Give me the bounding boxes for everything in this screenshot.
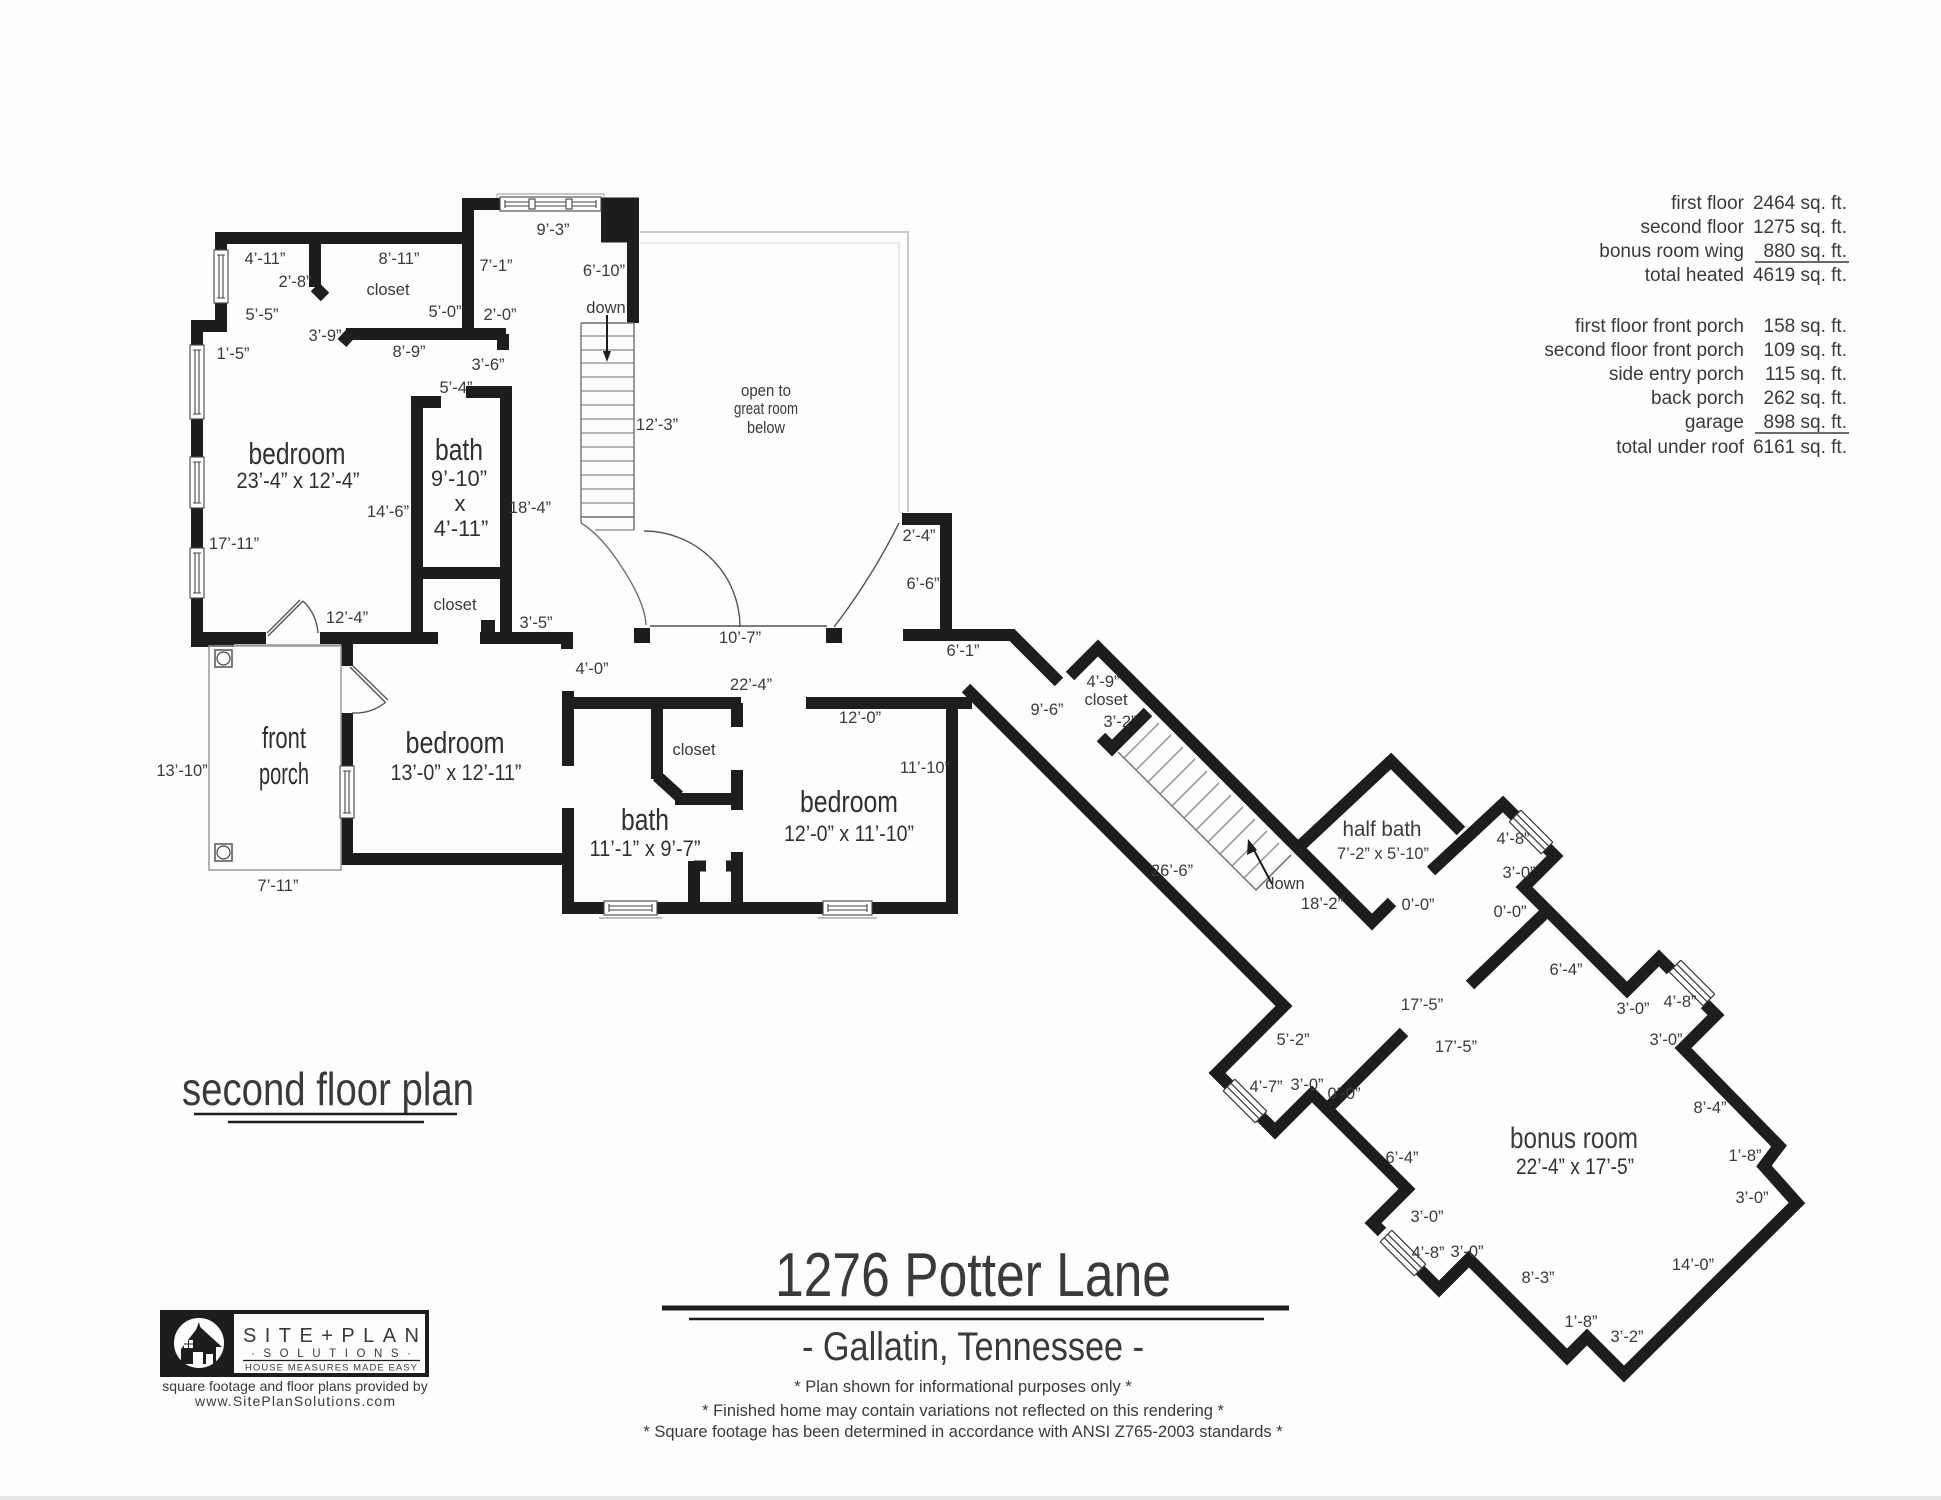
svg-text:4’-0”: 4’-0”	[575, 660, 608, 678]
svg-text:4’-11”: 4’-11”	[245, 250, 286, 268]
svg-text:bonus room: bonus room	[1510, 1122, 1638, 1155]
svg-text:17’-5”: 17’-5”	[1435, 1038, 1477, 1056]
svg-text:6’-6”: 6’-6”	[906, 575, 939, 593]
svg-text:14’-0”: 14’-0”	[1672, 1256, 1714, 1274]
svg-text:13’-0” x 12’-11”: 13’-0” x 12’-11”	[391, 760, 522, 785]
svg-text:880 sq. ft.: 880 sq. ft.	[1764, 241, 1847, 262]
svg-text:* Finished home may contain va: * Finished home may contain variations n…	[702, 1402, 1224, 1420]
svg-text:13’-10”: 13’-10”	[156, 762, 207, 780]
svg-text:6’-4”: 6’-4”	[1385, 1149, 1418, 1167]
svg-text:closet: closet	[1084, 691, 1128, 709]
svg-text:bedroom: bedroom	[406, 725, 505, 760]
svg-text:3’-0”: 3’-0”	[1649, 1031, 1682, 1049]
svg-text:4’-8”: 4’-8”	[1663, 993, 1696, 1011]
svg-text:262 sq. ft.: 262 sq. ft.	[1764, 388, 1847, 409]
svg-text:8’-4”: 8’-4”	[1693, 1099, 1726, 1117]
svg-text:5’-2”: 5’-2”	[1276, 1031, 1309, 1049]
svg-text:half bath: half bath	[1343, 818, 1422, 841]
svg-text:* Square footage has been dete: * Square footage has been determined in …	[643, 1423, 1283, 1441]
svg-text:14’-6”: 14’-6”	[367, 503, 409, 521]
svg-text:x: x	[455, 491, 466, 516]
svg-text:open to: open to	[741, 382, 791, 400]
svg-text:17’-5”: 17’-5”	[1401, 996, 1443, 1014]
svg-text:9’-6”: 9’-6”	[1030, 701, 1063, 719]
svg-text:22’-4”: 22’-4”	[730, 676, 772, 694]
svg-text:0’-0”: 0’-0”	[1327, 1085, 1360, 1103]
svg-text:total under roof: total under roof	[1616, 437, 1745, 458]
svg-text:3’-2”: 3’-2”	[1103, 713, 1136, 731]
svg-text:bedroom: bedroom	[800, 784, 898, 819]
svg-text:- Gallatin, Tennessee -: - Gallatin, Tennessee -	[802, 1325, 1144, 1369]
svg-text:closet: closet	[433, 596, 477, 614]
svg-text:4’-11”: 4’-11”	[434, 516, 489, 541]
svg-text:first floor front porch: first floor front porch	[1575, 316, 1744, 337]
svg-text:2464 sq. ft.: 2464 sq. ft.	[1753, 193, 1847, 214]
svg-text:3’-0”: 3’-0”	[1450, 1243, 1483, 1261]
svg-text:great room: great room	[734, 400, 798, 418]
svg-text:1276 Potter Lane: 1276 Potter Lane	[775, 1241, 1171, 1310]
svg-text:5’-4”: 5’-4”	[439, 379, 472, 397]
svg-text:bonus room wing: bonus room wing	[1599, 241, 1744, 262]
svg-text:12’-0” x 11’-10”: 12’-0” x 11’-10”	[784, 821, 914, 846]
svg-text:below: below	[747, 419, 785, 437]
svg-text:8’-9”: 8’-9”	[392, 343, 425, 361]
svg-text:first floor: first floor	[1671, 193, 1745, 214]
svg-text:3’-2”: 3’-2”	[1610, 1328, 1643, 1346]
svg-text:SITE+PLAN: SITE+PLAN	[243, 1325, 419, 1347]
svg-text:bedroom: bedroom	[249, 436, 346, 471]
svg-text:5’-0”: 5’-0”	[428, 303, 461, 321]
svg-text:5’-5”: 5’-5”	[245, 306, 278, 324]
svg-text:second floor front porch: second floor front porch	[1544, 340, 1744, 361]
svg-text:bath: bath	[621, 802, 669, 837]
svg-text:side entry porch: side entry porch	[1609, 364, 1744, 385]
svg-text:12’-3”: 12’-3”	[636, 416, 678, 434]
svg-text:garage: garage	[1685, 412, 1744, 433]
svg-text:down: down	[586, 299, 625, 317]
svg-text:3’-0”: 3’-0”	[1290, 1076, 1323, 1094]
svg-text:second floor: second floor	[1640, 217, 1744, 238]
svg-text:0’-0”: 0’-0”	[1401, 896, 1434, 914]
svg-text:2’-0”: 2’-0”	[483, 306, 516, 324]
svg-text:18’-2”: 18’-2”	[1301, 895, 1343, 913]
svg-text:* Plan shown for informational: * Plan shown for informational purposes …	[794, 1378, 1132, 1396]
svg-text:12’-0”: 12’-0”	[839, 709, 881, 727]
svg-text:11’-10”: 11’-10”	[900, 759, 950, 777]
svg-text:2’-4”: 2’-4”	[902, 527, 935, 545]
svg-text:1’-8”: 1’-8”	[1728, 1147, 1761, 1165]
svg-text:7’-2” x 5’-10”: 7’-2” x 5’-10”	[1337, 845, 1429, 863]
svg-text:7’-1”: 7’-1”	[479, 257, 512, 275]
svg-text:115 sq. ft.: 115 sq. ft.	[1765, 364, 1847, 385]
svg-text:HOUSE MEASURES MADE EASY: HOUSE MEASURES MADE EASY	[245, 1363, 418, 1374]
svg-text:26’-6”: 26’-6”	[1151, 862, 1193, 880]
svg-text:6161 sq. ft.: 6161 sq. ft.	[1753, 437, 1847, 458]
svg-text:4619 sq. ft.: 4619 sq. ft.	[1753, 265, 1847, 286]
svg-text:down: down	[1265, 875, 1304, 893]
svg-text:square footage and floor plans: square footage and floor plans provided …	[162, 1378, 427, 1394]
svg-text:4’-7”: 4’-7”	[1249, 1078, 1282, 1096]
svg-text:0’-0”: 0’-0”	[1493, 903, 1526, 921]
svg-text:3’-0”: 3’-0”	[1735, 1189, 1768, 1207]
svg-text:4’-8”: 4’-8”	[1496, 830, 1529, 848]
svg-text:22’-4” x 17’-5”: 22’-4” x 17’-5”	[1516, 1154, 1634, 1179]
svg-text:109 sq. ft.: 109 sq. ft.	[1764, 340, 1847, 361]
svg-text:1’-5”: 1’-5”	[216, 345, 249, 363]
svg-text:back porch: back porch	[1651, 388, 1744, 409]
svg-text:3’-6”: 3’-6”	[471, 356, 504, 374]
svg-text:6’-1”: 6’-1”	[946, 642, 979, 660]
svg-text:8’-3”: 8’-3”	[1521, 1269, 1554, 1287]
svg-text:second floor plan: second floor plan	[182, 1063, 474, 1115]
svg-text:18’-4”: 18’-4”	[509, 499, 551, 517]
svg-text:3’-9”: 3’-9”	[308, 327, 341, 345]
svg-text:3’-0”: 3’-0”	[1616, 1000, 1649, 1018]
svg-text:9’-3”: 9’-3”	[536, 221, 569, 239]
svg-text:158 sq. ft.: 158 sq. ft.	[1764, 316, 1847, 337]
svg-text:porch: porch	[259, 756, 309, 791]
svg-text:12’-4”: 12’-4”	[326, 609, 368, 627]
svg-text:6’-4”: 6’-4”	[1549, 961, 1582, 979]
svg-text:6’-10”: 6’-10”	[583, 262, 625, 280]
svg-text:9’-10”: 9’-10”	[431, 466, 487, 491]
svg-text:3’-0”: 3’-0”	[1410, 1208, 1443, 1226]
svg-text:bath: bath	[435, 432, 483, 467]
svg-text:3’-5”: 3’-5”	[519, 614, 552, 632]
svg-text:total heated: total heated	[1645, 265, 1744, 286]
svg-text:7’-11”: 7’-11”	[258, 877, 299, 895]
svg-text:front: front	[262, 720, 306, 755]
svg-text:4’-9”: 4’-9”	[1086, 673, 1119, 691]
svg-text:23’-4” x 12’-4”: 23’-4” x 12’-4”	[237, 468, 360, 493]
svg-text:3’-0”: 3’-0”	[1502, 864, 1535, 882]
svg-text:10’-7”: 10’-7”	[719, 629, 761, 647]
svg-text:8’-11”: 8’-11”	[379, 250, 420, 268]
svg-text:2’-8”: 2’-8”	[278, 273, 311, 291]
svg-text:closet: closet	[672, 741, 716, 759]
svg-text:closet: closet	[366, 281, 410, 299]
svg-text:1275 sq. ft.: 1275 sq. ft.	[1753, 217, 1847, 238]
svg-text:11’-1” x 9’-7”: 11’-1” x 9’-7”	[590, 836, 701, 861]
svg-text:898 sq. ft.: 898 sq. ft.	[1764, 412, 1847, 433]
svg-text:17’-11”: 17’-11”	[209, 535, 259, 553]
svg-text:4’-8”: 4’-8”	[1411, 1244, 1444, 1262]
svg-text:www.SitePlanSolutions.com: www.SitePlanSolutions.com	[194, 1393, 395, 1409]
svg-text:1’-8”: 1’-8”	[1564, 1313, 1597, 1331]
